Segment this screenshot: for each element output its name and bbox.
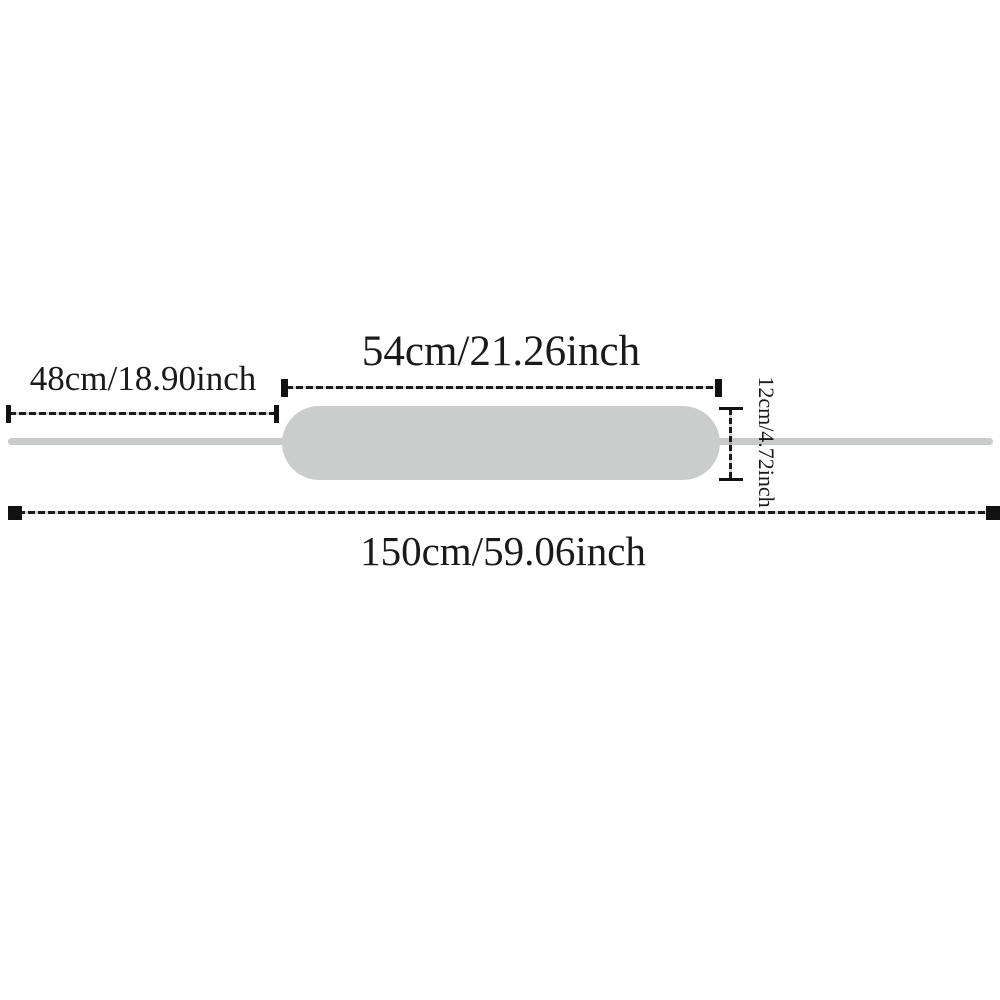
pad-height-dimension-line [729, 409, 732, 479]
pad-height-label: 12cm/4.72inch [755, 376, 777, 507]
total-length-dimension-cap-right [986, 506, 1000, 520]
total-length-label: 150cm/59.06inch [360, 531, 646, 572]
pad-height-dimension-cap-bottom [719, 478, 743, 481]
pad-width-dimension-cap-left [281, 379, 288, 397]
pad-width-dimension-line [286, 386, 716, 389]
left-strap-dimension-line [9, 412, 277, 415]
pad-width-dimension-cap-right [715, 379, 722, 397]
pad-shape [282, 406, 720, 480]
left-strap-dimension-cap-right [274, 405, 279, 423]
total-length-dimension-line [18, 511, 990, 514]
dimension-diagram: 48cm/18.90inch 54cm/21.26inch 12cm/4.72i… [0, 0, 1000, 1000]
left-strap-dimension-cap-left [6, 405, 11, 423]
left-strap-length-label: 48cm/18.90inch [0, 361, 286, 396]
pad-width-label: 54cm/21.26inch [362, 330, 640, 373]
pad-height-dimension-cap-top [719, 407, 743, 410]
total-length-dimension-cap-left [8, 506, 22, 520]
